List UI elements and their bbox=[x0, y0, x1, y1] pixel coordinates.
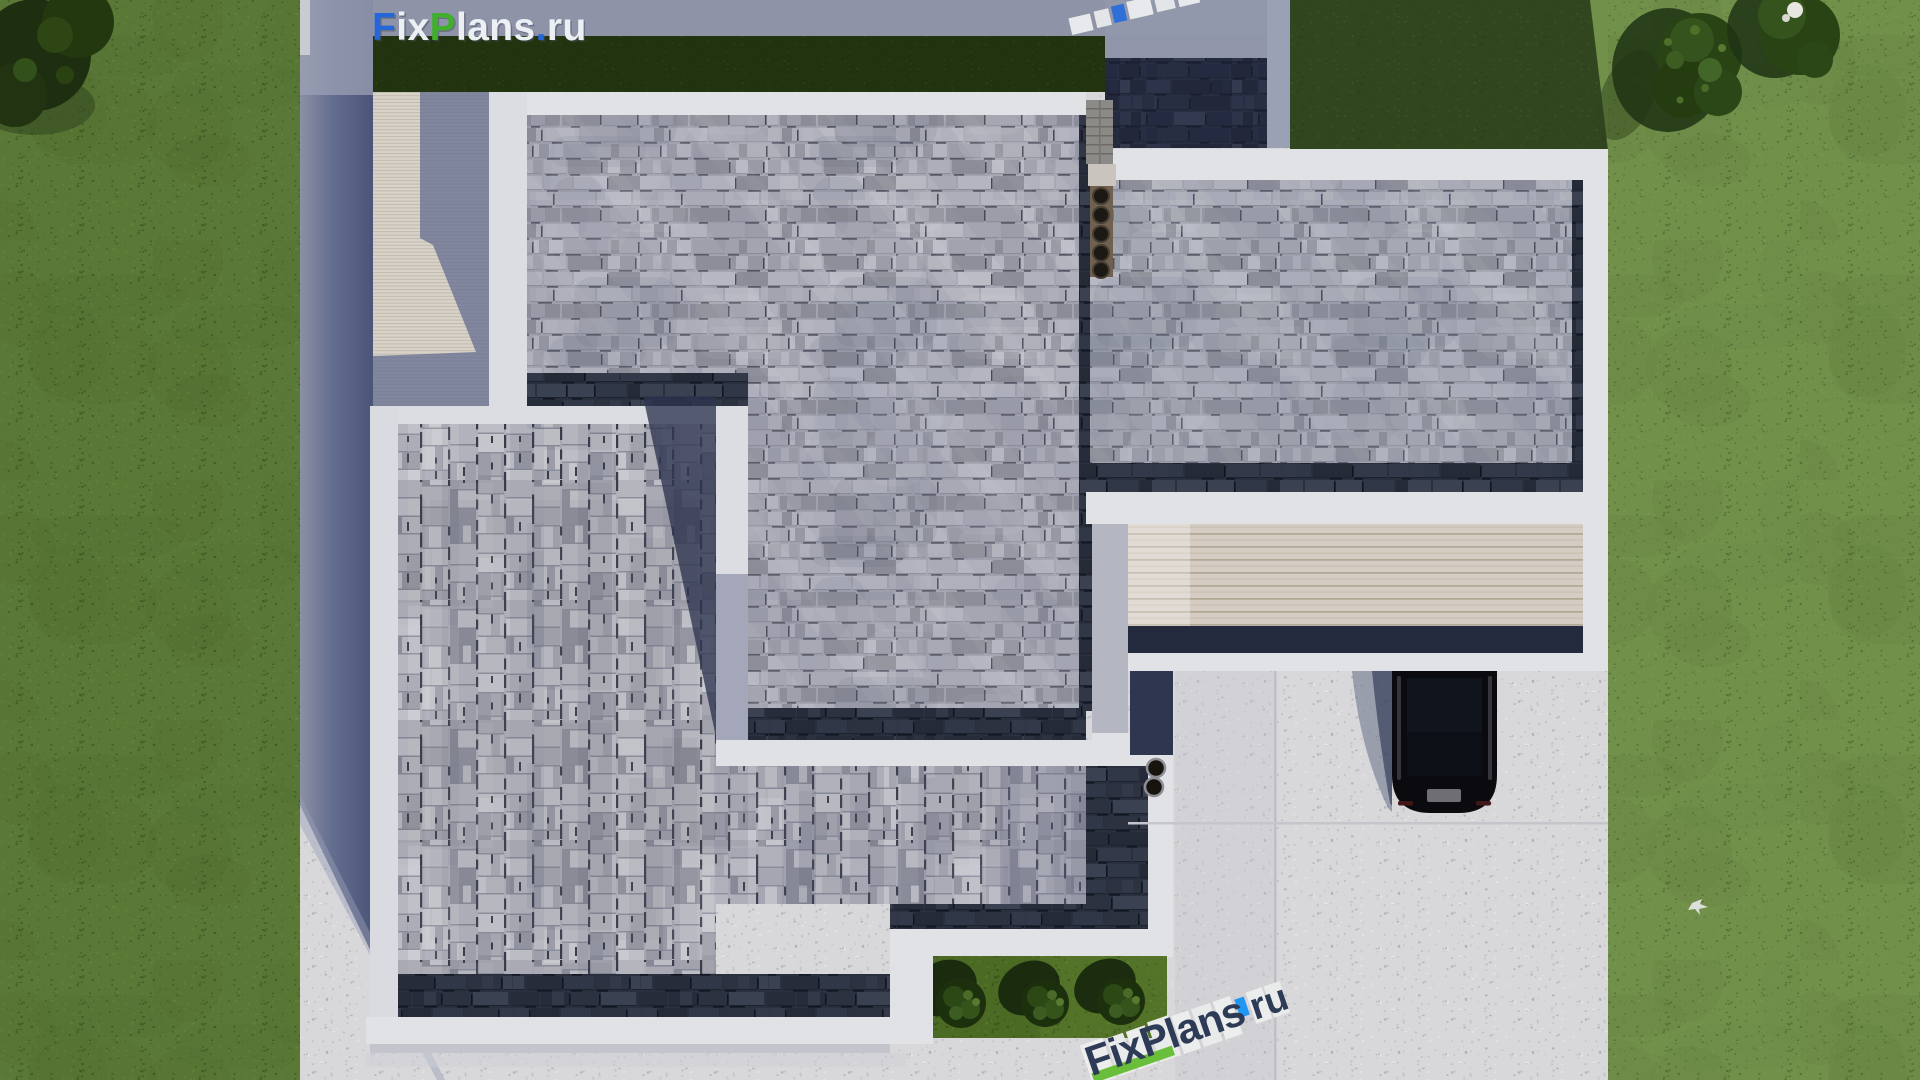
svg-text:FixPlans.ru: FixPlans.ru bbox=[372, 6, 587, 49]
